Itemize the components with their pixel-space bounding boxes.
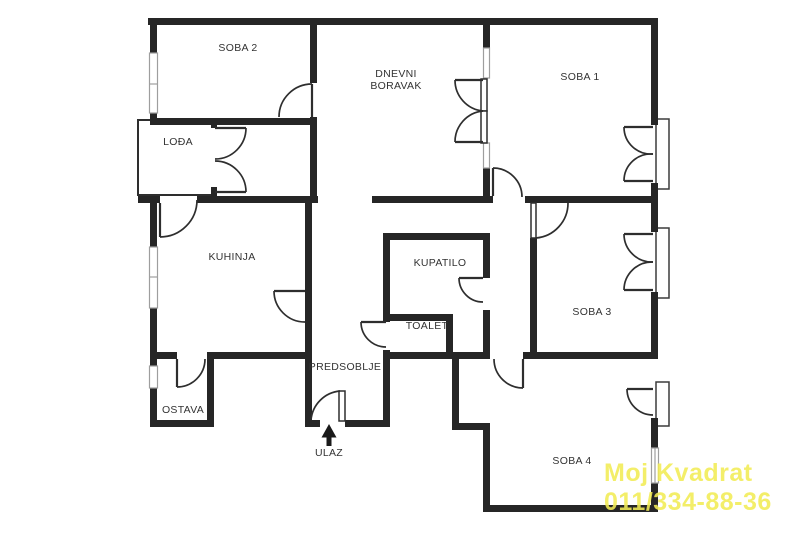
balcony-window-boxes bbox=[656, 119, 669, 426]
floorplan-canvas: SOBA 2 DNEVNIBORAVAK SOBA 1 LOĐA KUHINJA… bbox=[0, 0, 800, 533]
entrance-label: ULAZ bbox=[315, 447, 343, 459]
room-label-dnevni-boravak: DNEVNIBORAVAK bbox=[370, 68, 421, 92]
room-label-soba2: SOBA 2 bbox=[218, 42, 257, 54]
walls bbox=[138, 18, 658, 512]
doors bbox=[160, 79, 653, 421]
room-label-soba3: SOBA 3 bbox=[572, 306, 611, 318]
room-label-soba1: SOBA 1 bbox=[560, 71, 599, 83]
room-label-ostava: OSTAVA bbox=[162, 404, 204, 416]
room-label-dnevni-line1: DNEVNI bbox=[370, 68, 421, 80]
room-label-toalet: TOALET bbox=[406, 320, 448, 332]
room-label-predsoblje: PREDSOBLJE bbox=[309, 361, 381, 373]
room-label-soba4: SOBA 4 bbox=[552, 455, 591, 467]
room-label-dnevni-line2: BORAVAK bbox=[370, 80, 421, 92]
room-label-lodja: LOĐA bbox=[163, 136, 193, 148]
watermark-line1: Moj Kvadrat bbox=[604, 459, 772, 488]
windows bbox=[150, 48, 659, 483]
room-label-kuhinja: KUHINJA bbox=[208, 251, 255, 263]
entrance-arrow-icon bbox=[322, 424, 337, 446]
loggia-outline bbox=[138, 120, 217, 196]
watermark: Moj Kvadrat 011/334-88-36 bbox=[604, 459, 772, 517]
room-label-kupatilo: KUPATILO bbox=[414, 257, 467, 269]
watermark-line2: 011/334-88-36 bbox=[604, 488, 772, 517]
